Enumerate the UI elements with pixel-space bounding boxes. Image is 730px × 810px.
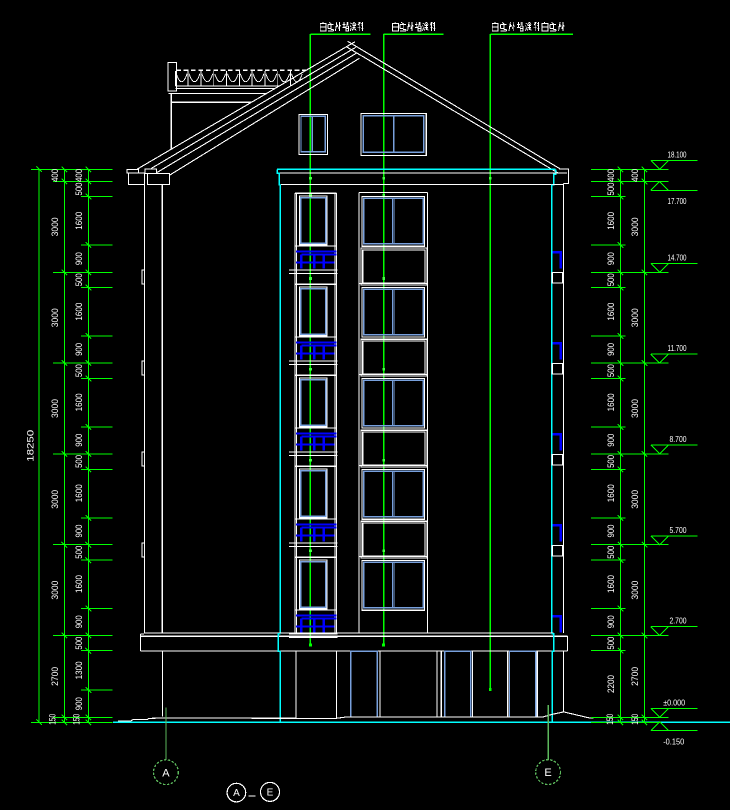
svg-text:500: 500 [606, 637, 616, 650]
svg-text:E: E [544, 767, 551, 779]
svg-text:900: 900 [606, 525, 616, 538]
svg-text:2700: 2700 [630, 667, 640, 686]
svg-text:900: 900 [74, 252, 84, 265]
svg-text:±0.000: ±0.000 [663, 697, 685, 707]
svg-text:500: 500 [74, 183, 84, 196]
svg-text:-0.150: -0.150 [663, 737, 684, 747]
svg-text:3000: 3000 [50, 490, 60, 509]
svg-text:5.700: 5.700 [670, 525, 687, 535]
svg-text:900: 900 [606, 434, 616, 447]
svg-text:900: 900 [74, 525, 84, 538]
svg-text:8.700: 8.700 [670, 434, 687, 444]
svg-text:1600: 1600 [606, 393, 616, 411]
svg-text:1600: 1600 [606, 575, 616, 593]
svg-text:3000: 3000 [630, 399, 640, 418]
svg-text:1600: 1600 [74, 212, 84, 230]
svg-text:3000: 3000 [630, 490, 640, 509]
svg-text:400: 400 [74, 169, 84, 182]
svg-text:18.100: 18.100 [668, 149, 687, 159]
svg-text:500: 500 [606, 546, 616, 559]
svg-text:150: 150 [630, 714, 640, 725]
svg-text:900: 900 [74, 697, 84, 710]
svg-text:3000: 3000 [50, 217, 60, 236]
svg-text:A: A [233, 788, 240, 799]
svg-text:900: 900 [606, 343, 616, 356]
svg-text:400: 400 [606, 169, 616, 182]
svg-text:500: 500 [74, 637, 84, 650]
svg-text:1600: 1600 [74, 575, 84, 593]
svg-text:900: 900 [606, 615, 616, 628]
svg-text:3000: 3000 [50, 308, 60, 327]
svg-text:3000: 3000 [630, 308, 640, 327]
svg-text:11.700: 11.700 [668, 343, 687, 353]
svg-text:2700: 2700 [50, 667, 60, 686]
svg-text:500: 500 [606, 183, 616, 196]
svg-text:900: 900 [74, 434, 84, 447]
svg-text:500: 500 [74, 364, 84, 377]
svg-text:1300: 1300 [74, 661, 84, 679]
svg-text:500: 500 [606, 364, 616, 377]
svg-text:500: 500 [74, 546, 84, 559]
svg-text:400: 400 [630, 169, 640, 182]
svg-text:150: 150 [47, 714, 57, 725]
svg-text:14.700: 14.700 [668, 252, 687, 262]
svg-text:500: 500 [74, 273, 84, 286]
svg-text:500: 500 [606, 455, 616, 468]
svg-text:17.700: 17.700 [668, 196, 687, 206]
svg-text:18250: 18250 [25, 430, 35, 462]
svg-text:900: 900 [74, 343, 84, 356]
svg-text:3000: 3000 [50, 581, 60, 600]
svg-text:2200: 2200 [606, 675, 616, 693]
svg-text:400: 400 [50, 169, 60, 182]
svg-text:1600: 1600 [74, 393, 84, 411]
svg-text:150: 150 [71, 714, 81, 725]
svg-text:1600: 1600 [606, 484, 616, 502]
svg-text:900: 900 [606, 252, 616, 265]
svg-text:E: E [267, 787, 274, 798]
svg-text:3000: 3000 [630, 217, 640, 236]
svg-text:1600: 1600 [606, 212, 616, 230]
svg-text:900: 900 [74, 615, 84, 628]
svg-text:3000: 3000 [630, 581, 640, 600]
svg-text:3000: 3000 [50, 399, 60, 418]
svg-text:A: A [162, 767, 170, 779]
svg-text:500: 500 [606, 273, 616, 286]
svg-text:1600: 1600 [74, 484, 84, 502]
svg-text:2.700: 2.700 [670, 616, 687, 626]
svg-text:1600: 1600 [606, 303, 616, 321]
svg-text:150: 150 [605, 714, 615, 725]
svg-text:500: 500 [74, 455, 84, 468]
svg-text:1600: 1600 [74, 303, 84, 321]
